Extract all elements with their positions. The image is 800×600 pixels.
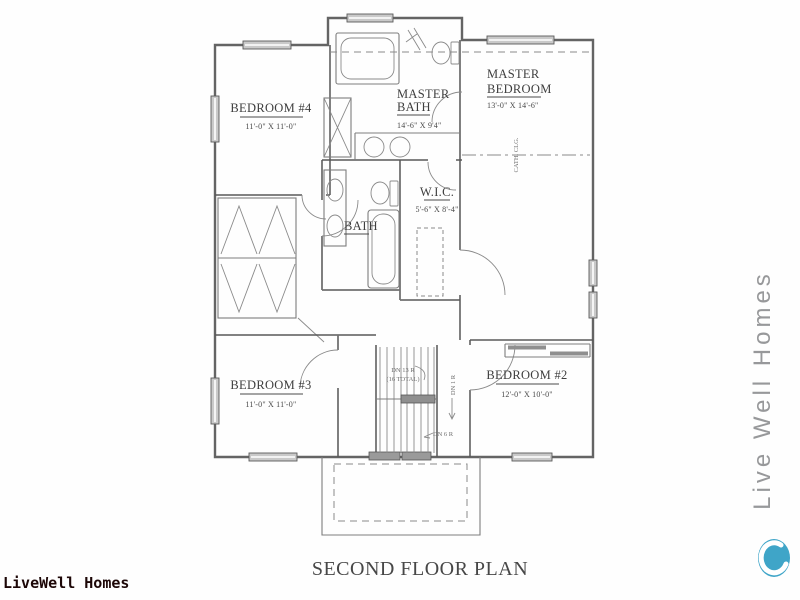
double-vanity — [355, 133, 460, 160]
room-name: BEDROOM #3 — [230, 378, 311, 392]
room-dims: 11'-0" X 11'-0" — [246, 400, 297, 409]
room-dims: 12'-0" X 10'-0" — [501, 390, 553, 399]
bathtub — [336, 33, 399, 84]
room-name: W.I.C. — [420, 185, 454, 199]
room-dims: 11'-0" X 11'-0" — [246, 122, 297, 131]
wic-label: W.I.C. 5'-6" X 8'-4" — [415, 185, 458, 214]
door-swings — [300, 92, 515, 390]
room-name: BEDROOM #4 — [230, 101, 312, 115]
room-dims: 5'-6" X 8'-4" — [415, 205, 458, 214]
room-name: BEDROOM — [487, 82, 552, 96]
page-title: SECOND FLOOR PLAN — [270, 558, 570, 581]
room-dims: 14'-6" X 9'4" — [397, 121, 441, 130]
toilet — [432, 42, 459, 64]
master-bath-label: MASTER BATH 14'-6" X 9'4" — [397, 87, 450, 130]
hall-down-note: DN 1 R — [450, 374, 457, 395]
attic-note-marks — [406, 28, 426, 50]
bedroom3-label: BEDROOM #3 11'-0" X 11'-0" — [230, 378, 311, 409]
toilet — [371, 181, 398, 206]
bath-label: BATH — [344, 219, 378, 234]
livewell-logo — [758, 539, 790, 577]
floor-plan-drawing: BEDROOM #4 11'-0" X 11'-0" MASTER BATH 1… — [0, 0, 800, 600]
lower-down-note: DN 6 R — [433, 431, 454, 438]
bedroom2-closet — [505, 344, 590, 357]
stair-annotations: DN 13 R (16 TOTAL) DN 1 R DN 6 R CATH. C… — [387, 137, 521, 438]
room-name: BATH — [397, 100, 431, 114]
ceiling-note: CATH. CLG. — [513, 137, 520, 172]
window — [243, 41, 291, 49]
bedroom4-label: BEDROOM #4 11'-0" X 11'-0" — [230, 101, 312, 131]
room-dims: 13'-0" X 14'-6" — [487, 101, 539, 110]
room-name: BEDROOM #2 — [486, 368, 567, 382]
window — [347, 14, 393, 22]
bedroom2-label: BEDROOM #2 12'-0" X 10'-0" — [486, 368, 567, 399]
window — [589, 260, 597, 286]
watermark-right-vertical: Live Well Homes — [749, 270, 777, 510]
watermark-bottom-left: LiveWell Homes — [3, 574, 129, 592]
window — [211, 378, 219, 424]
stairs-total-note: (16 TOTAL) — [387, 376, 420, 383]
master-bedroom-label: MASTER BEDROOM 13'-0" X 14'-6" — [487, 67, 552, 110]
room-name: MASTER — [487, 67, 540, 81]
floor-plan-page: BEDROOM #4 11'-0" X 11'-0" MASTER BATH 1… — [0, 0, 800, 600]
window — [249, 453, 297, 461]
room-name: MASTER — [397, 87, 450, 101]
window — [512, 453, 552, 461]
room-name: BATH — [344, 219, 378, 233]
porch-outline — [322, 457, 480, 535]
wic-shelving — [417, 228, 443, 296]
stairs-down-note: DN 13 R — [391, 367, 415, 374]
window — [589, 292, 597, 318]
entry-door — [369, 452, 431, 460]
vanity — [324, 170, 346, 246]
window — [487, 36, 554, 44]
window — [211, 96, 219, 142]
shower — [324, 98, 351, 157]
